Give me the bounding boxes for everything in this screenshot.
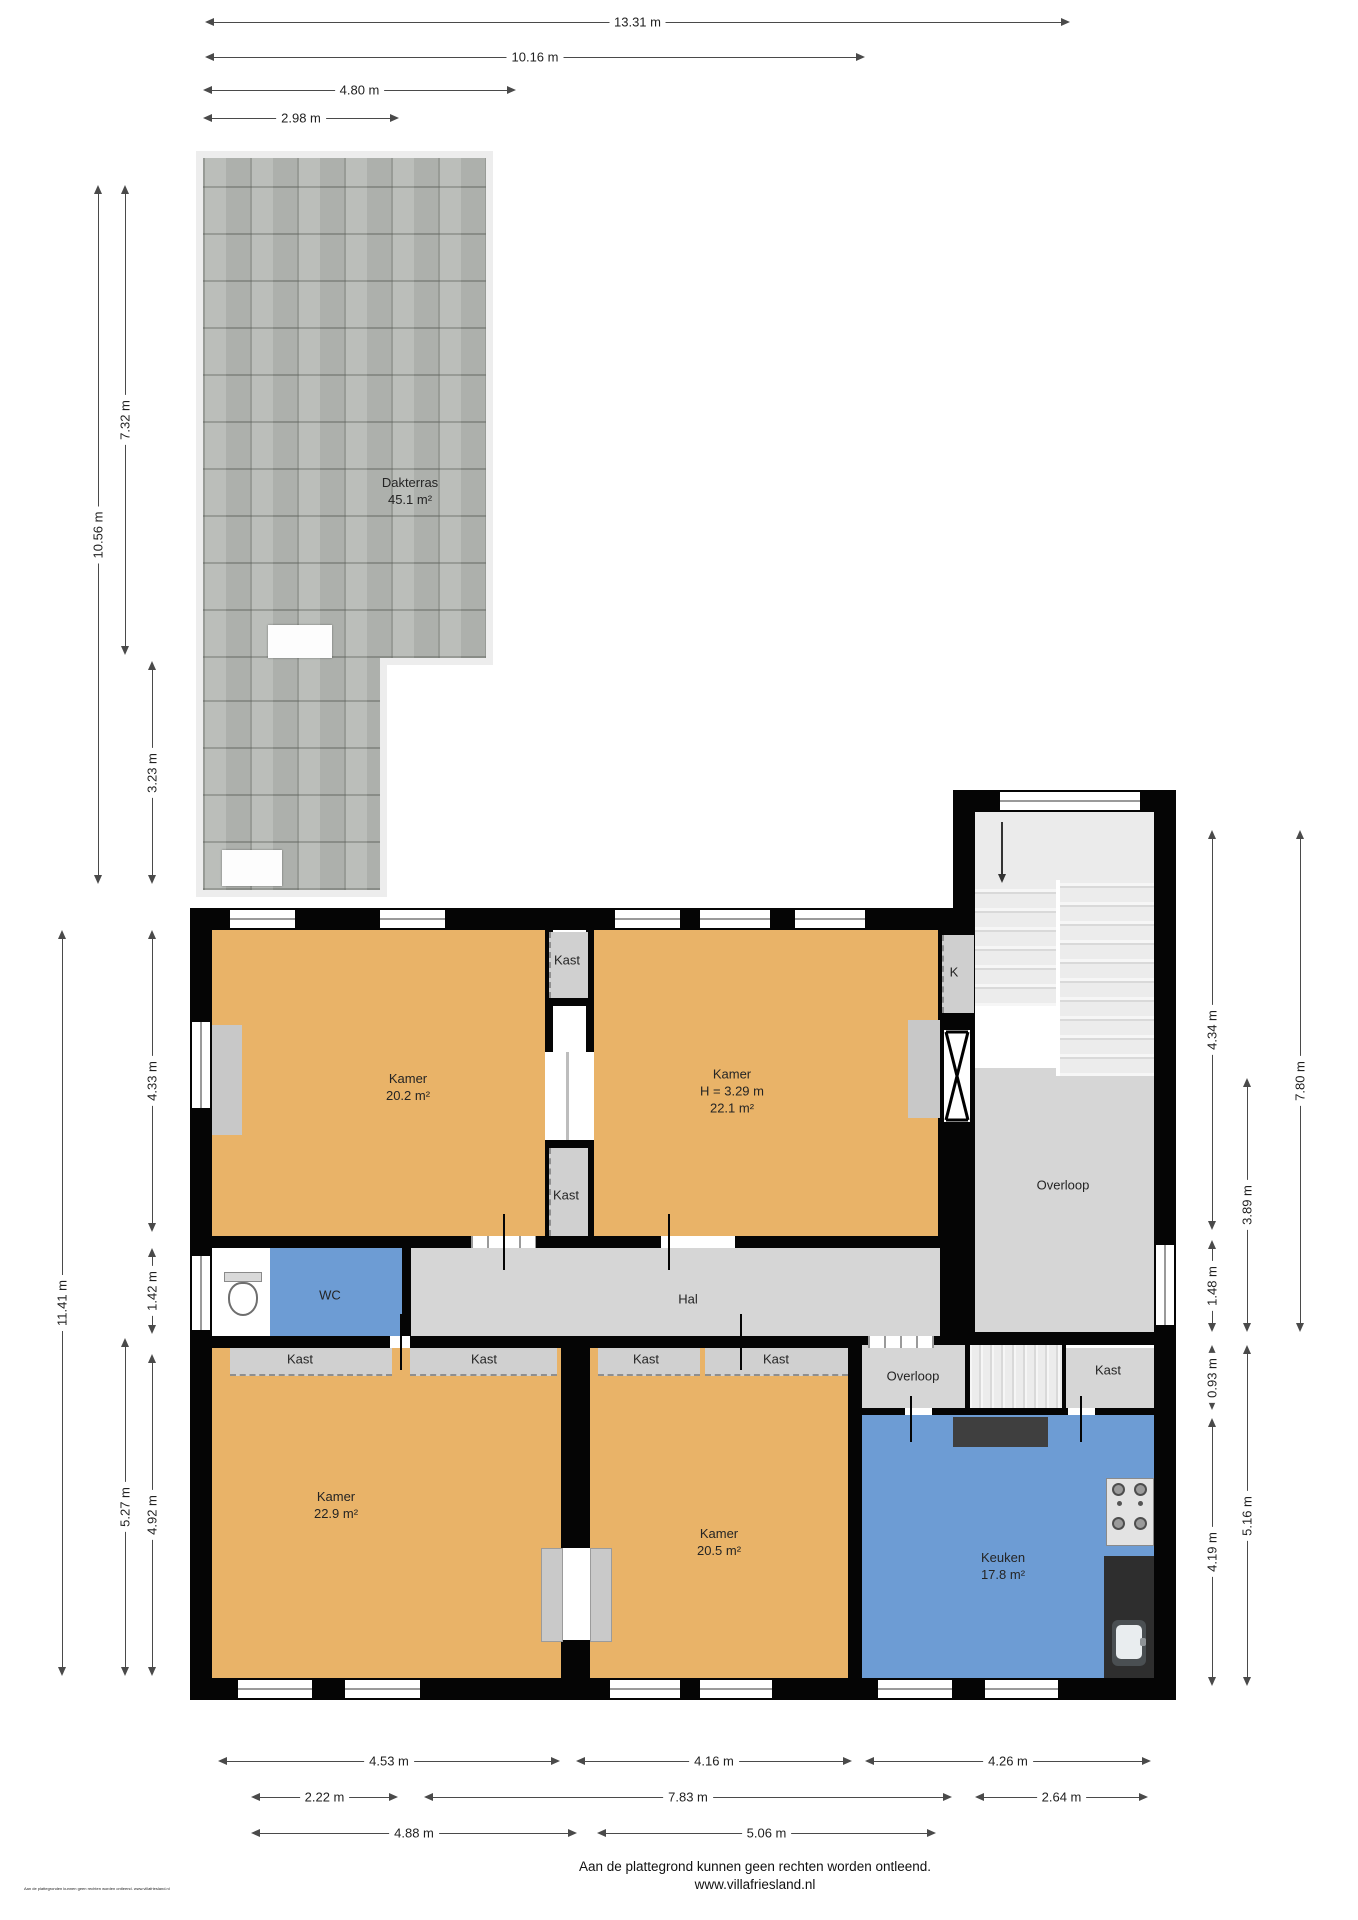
dim-b-2-22: 2.22 m [251,1792,398,1802]
dim-b-4-16: 4.16 m [576,1756,852,1766]
window [1000,792,1140,810]
terrace-edge [196,151,493,158]
room-label-kast-row-3: Kast [633,1352,659,1369]
room-label-kast-k: K [950,965,959,982]
stove-burner [1134,1483,1147,1496]
stairs-down [970,1345,1062,1408]
dimension-part [148,1223,156,1232]
window [700,910,770,928]
wall-hall-lower [410,1336,868,1348]
toilet-bowl [228,1282,258,1316]
stair-flight-left [975,880,1056,1006]
dimension-part [1208,1323,1216,1332]
dimension-label: 4.26 m [983,1754,1033,1769]
dim-11-41: 11.41 m [57,930,67,1676]
toilet-tank [224,1272,262,1282]
dimension-part [856,53,865,61]
dimension-part [148,661,156,670]
room-label-line: 17.8 m² [981,1567,1025,1584]
dimension-part [205,18,214,26]
room-label-line: 45.1 m² [382,492,438,509]
dimension-part [121,185,129,194]
room-kamer-22-9 [212,1348,561,1678]
window [238,1680,312,1698]
wall-kast-column [545,1140,594,1148]
dimension-part [94,875,102,884]
room-label-line: Dakterras [382,475,438,492]
window [985,1680,1058,1698]
dimension-part [1208,1418,1216,1427]
dimension-part [1208,1677,1216,1686]
stove-burner [1112,1483,1125,1496]
room-label-line: Kast [763,1352,789,1369]
wall-stair-left [953,812,975,930]
room-label-line: 22.9 m² [314,1506,358,1523]
room-label-keuken: Keuken17.8 m² [981,1550,1025,1584]
terrace-skylight [222,850,282,886]
dimension-part [1208,1240,1216,1249]
double-door-panel [590,1548,612,1642]
room-label-line: Hal [678,1292,698,1309]
stair-direction-arrowhead [998,874,1006,883]
room-label-line: 20.2 m² [386,1088,430,1105]
dimension-label: 4.80 m [335,83,385,98]
room-label-kast-row-1: Kast [287,1352,313,1369]
dimension-label: 4.92 m [145,1490,160,1540]
stove-knob [1117,1501,1122,1506]
dimension-part [865,1757,874,1765]
dim-10-16: 10.16 m [205,52,865,62]
room-label-kast-row-2: Kast [471,1352,497,1369]
dimension-part [58,930,66,939]
wall-lower-divider [561,1345,590,1548]
dim-4-80: 4.80 m [203,85,516,95]
dimension-part [1139,1793,1148,1801]
stove-burner [1112,1517,1125,1530]
dimension-label: 10.16 m [507,50,564,65]
dim-4-34: 4.34 m [1207,830,1217,1230]
dim-4-33: 4.33 m [147,930,157,1232]
dimension-part [148,1667,156,1676]
dim-5-27: 5.27 m [120,1338,130,1676]
stove-burner [1134,1517,1147,1530]
window [345,1680,420,1698]
dimension-label: 4.34 m [1205,1005,1220,1055]
dim-0-93: 0.93 m [1207,1345,1217,1410]
room-label-line: 20.5 m² [697,1543,741,1560]
room-label-wc: WC [319,1288,341,1305]
dim-1-48: 1.48 m [1207,1240,1217,1332]
dimension-label: 1.42 m [145,1266,160,1316]
double-door-panel [541,1548,563,1642]
terrace-skylight [268,625,332,658]
stairwell-x-panel [944,1030,970,1122]
dimension-label: 1.48 m [1205,1261,1220,1311]
stove-knob [1138,1501,1143,1506]
dimension-label: 5.16 m [1240,1491,1255,1541]
dimension-part [1296,830,1304,839]
sink [1112,1620,1146,1666]
dimension-part [121,1338,129,1347]
dim-b-2-64: 2.64 m [975,1792,1148,1802]
door-tick [400,1314,402,1370]
dimension-part [58,1667,66,1676]
glass-door [868,1336,934,1348]
dim-13-31: 13.31 m [205,17,1070,27]
dimension-part [424,1793,433,1801]
dimension-part [1142,1757,1151,1765]
room-label-line: Kast [471,1352,497,1369]
stove-panel [1106,1478,1154,1546]
room-label-overloop-boven: Overloop [1037,1178,1090,1195]
room-label-line: Kast [287,1352,313,1369]
dimension-part [148,1325,156,1334]
window [230,910,295,928]
terrace-edge [380,658,387,897]
dimension-part [1208,830,1216,839]
dimension-part [203,86,212,94]
dimension-label: 2.64 m [1037,1790,1087,1805]
dimension-part [390,114,399,122]
dim-b-7-83: 7.83 m [424,1792,952,1802]
window [878,1680,952,1698]
dimension-label: 10.56 m [91,506,106,563]
dimension-part [148,930,156,939]
floorplan-canvas: Aan de plattegrond kunnen geen rechten w… [0,0,1358,1920]
dim-b-4-26: 4.26 m [865,1756,1151,1766]
terrace-edge [196,890,387,897]
dim-b-4-88: 4.88 m [251,1828,577,1838]
room-label-line: Kast [554,953,580,970]
door-between-rooms [545,1052,594,1140]
room-label-kast-row-4: Kast [763,1352,789,1369]
window [192,1256,210,1330]
dimension-part [568,1829,577,1837]
room-label-line: Kast [553,1188,579,1205]
door-tick [1080,1396,1082,1442]
dim-10-56: 10.56 m [93,185,103,884]
dimension-label: 4.53 m [364,1754,414,1769]
dimension-part [1208,1221,1216,1230]
radiator [908,1020,940,1118]
room-label-line: Kast [1095,1363,1121,1380]
door-tick [668,1214,670,1270]
dimension-part [251,1793,260,1801]
dimension-part [148,875,156,884]
stair-direction-arrow [1001,822,1003,874]
dim-5-16: 5.16 m [1242,1345,1252,1686]
footer-disclaimer: Aan de plattegrond kunnen geen rechten w… [579,1858,931,1893]
dimension-part [975,1793,984,1801]
dimension-part [1243,1323,1251,1332]
room-label-line: Overloop [1037,1178,1090,1195]
door-tick [503,1214,505,1270]
wall-rooms-hall [190,1236,471,1248]
room-label-overloop-onder: Overloop [887,1369,940,1386]
wall-hall-lower [190,1336,390,1348]
dim-7-80: 7.80 m [1295,830,1305,1332]
dimension-label: 3.23 m [145,748,160,798]
room-label-line: WC [319,1288,341,1305]
room-label-line: Kamer [700,1067,764,1084]
chimney-bay [212,1025,242,1135]
room-label-hal: Hal [678,1292,698,1309]
dim-3-23: 3.23 m [147,661,157,884]
dimension-part [205,53,214,61]
footer-website-link[interactable]: www.villafriesland.nl [579,1876,931,1894]
room-label-kast-top: Kast [554,953,580,970]
room-label-kast-middle: Kast [553,1188,579,1205]
dimension-label: 11.41 m [55,1275,70,1331]
door-tick [910,1396,912,1442]
window [380,910,445,928]
room-label-line: Kamer [697,1526,741,1543]
room-label-kast-onder: Kast [1095,1363,1121,1380]
dim-b-5-06: 5.06 m [597,1828,936,1838]
terrace-tiles [203,158,486,658]
wall-overloop-bottom [953,1332,1176,1345]
dimension-label: 4.33 m [145,1056,160,1106]
dim-3-89: 3.89 m [1242,1078,1252,1332]
room-label-line: Kamer [386,1071,430,1088]
dimension-part [121,646,129,655]
dimension-part [1243,1345,1251,1354]
fine-print: Aan de plattegronden kunnen geen rechten… [24,1886,170,1891]
room-label-line: H = 3.29 m [700,1084,764,1101]
terrace-edge [486,151,493,665]
wall-lower-divider [561,1640,590,1678]
terrace-edge [380,658,493,665]
window [615,910,680,928]
window [795,910,865,928]
room-label-dakterras: Dakterras45.1 m² [382,475,438,509]
sink-tap [1140,1638,1146,1646]
door-tick [740,1314,742,1370]
room-kamer-20-5 [590,1348,848,1678]
dimension-part [1296,1323,1304,1332]
room-label-kamer-22-9: Kamer22.9 m² [314,1489,358,1523]
dimension-label: 13.31 m [609,15,666,30]
dim-4-19: 4.19 m [1207,1418,1217,1686]
stair-flight-right [1060,880,1154,1076]
dimension-part [148,1354,156,1363]
dimension-label: 3.89 m [1240,1180,1255,1230]
dimension-label: 5.06 m [742,1826,792,1841]
dimension-part [94,185,102,194]
kitchen-counter [953,1417,1048,1447]
dimension-part [203,114,212,122]
room-label-line: Overloop [887,1369,940,1386]
dimension-label: 2.98 m [276,111,326,126]
dim-7-32: 7.32 m [120,185,130,655]
stair-divider [1056,880,1060,1076]
room-hal [411,1248,940,1336]
dim-2-98: 2.98 m [203,113,399,123]
wall-rooms-hall [536,1236,661,1248]
footer-line1: Aan de plattegrond kunnen geen rechten w… [579,1858,931,1876]
dimension-part [148,1248,156,1257]
dimension-part [927,1829,936,1837]
dimension-label: 7.32 m [118,395,133,445]
wall-kamer-keuken [848,1336,862,1678]
dimension-part [389,1793,398,1801]
dimension-label: 4.88 m [389,1826,439,1841]
dimension-part [843,1757,852,1765]
room-label-line: Kamer [314,1489,358,1506]
dimension-part [507,86,516,94]
dimension-label: 4.19 m [1205,1527,1220,1577]
room-label-kamer-20-2: Kamer20.2 m² [386,1071,430,1105]
window [1156,1245,1174,1325]
room-label-line: Keuken [981,1550,1025,1567]
dimension-part [551,1757,560,1765]
terrace-edge [196,151,203,897]
dimension-part [943,1793,952,1801]
room-label-line: K [950,965,959,982]
dimension-part [218,1757,227,1765]
room-kamer-22-1 [594,930,938,1236]
dimension-label: 2.22 m [300,1790,350,1805]
room-label-line: 22.1 m² [700,1100,764,1117]
window [610,1680,680,1698]
dimension-part [1061,18,1070,26]
door-between-rooms-leaf [566,1052,569,1140]
sink-basin [1116,1625,1142,1659]
dimension-part [121,1667,129,1676]
wall-kast-column [545,998,594,1006]
dimension-part [576,1757,585,1765]
dim-4-92: 4.92 m [147,1354,157,1676]
dimension-part [251,1829,260,1837]
window [700,1680,772,1698]
room-label-kamer-22-1: KamerH = 3.29 m22.1 m² [700,1067,764,1118]
window [192,1022,210,1108]
room-overloop-boven [975,1068,1154,1332]
dim-1-42: 1.42 m [147,1248,157,1334]
dim-b-4-53: 4.53 m [218,1756,560,1766]
dimension-part [1243,1078,1251,1087]
dimension-label: 7.83 m [663,1790,713,1805]
dimension-label: 0.93 m [1205,1353,1220,1403]
dimension-label: 5.27 m [118,1482,133,1532]
room-label-kamer-20-5: Kamer20.5 m² [697,1526,741,1560]
wall-wc-hal [402,1248,411,1336]
room-kamer-20-2 [212,930,545,1236]
dimension-label: 7.80 m [1293,1056,1308,1106]
dimension-part [597,1829,606,1837]
dimension-label: 4.16 m [689,1754,739,1769]
dimension-part [1243,1677,1251,1686]
room-label-line: Kast [633,1352,659,1369]
